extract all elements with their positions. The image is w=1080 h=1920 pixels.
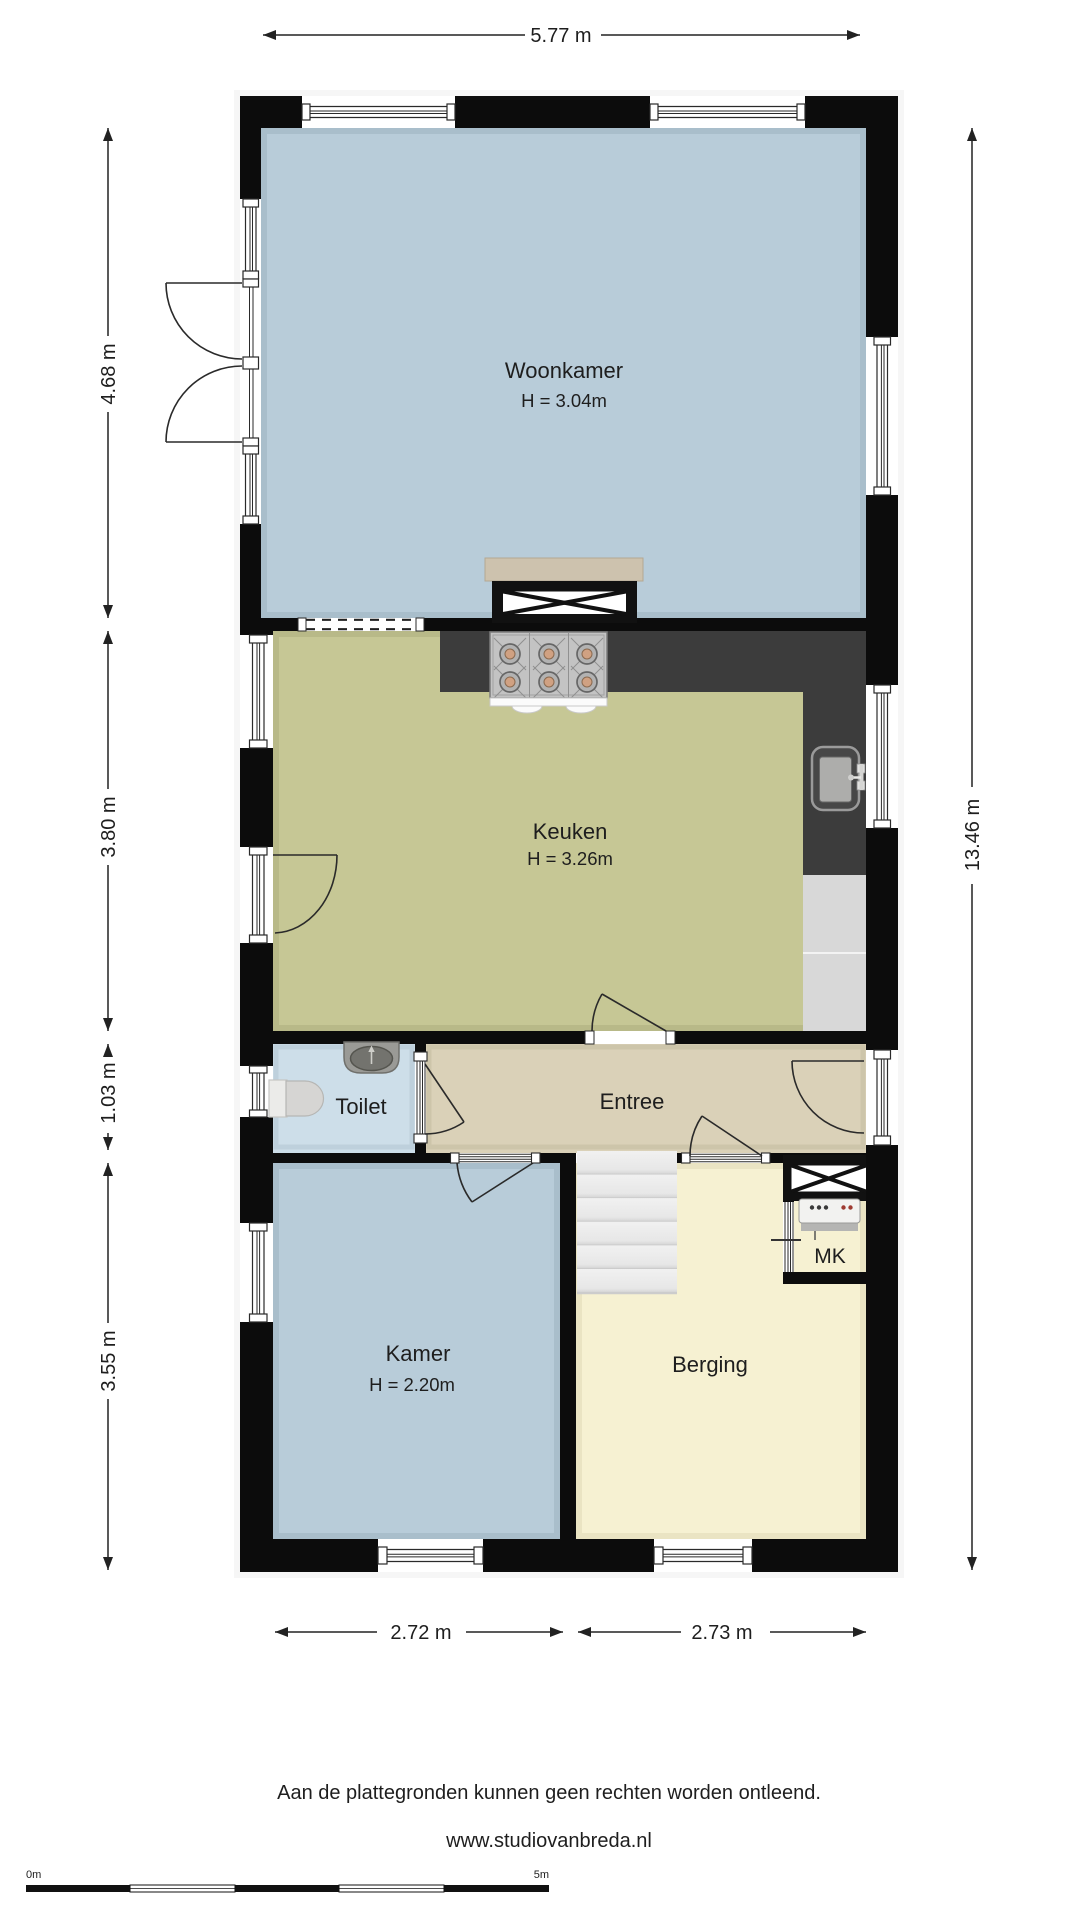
svg-text:3.80 m: 3.80 m (98, 796, 120, 857)
svg-text:H = 3.04m: H = 3.04m (521, 390, 607, 411)
svg-text:Aan de plattegronden kunnen ge: Aan de plattegronden kunnen geen rechten… (277, 1782, 821, 1804)
svg-text:2.72 m: 2.72 m (390, 1622, 451, 1644)
svg-text:2.73 m: 2.73 m (691, 1622, 752, 1644)
svg-text:H = 3.26m: H = 3.26m (527, 848, 613, 869)
svg-text:5.77 m: 5.77 m (530, 25, 591, 47)
svg-text:Kamer: Kamer (386, 1341, 451, 1366)
svg-text:MK: MK (814, 1245, 846, 1268)
svg-text:Woonkamer: Woonkamer (505, 358, 623, 383)
svg-text:Berging: Berging (672, 1352, 748, 1377)
svg-text:www.studiovanbreda.nl: www.studiovanbreda.nl (445, 1830, 652, 1852)
svg-text:H = 2.20m: H = 2.20m (369, 1374, 455, 1395)
svg-text:3.55 m: 3.55 m (98, 1330, 120, 1391)
svg-text:5m: 5m (534, 1869, 549, 1881)
svg-text:4.68 m: 4.68 m (98, 343, 120, 404)
svg-text:13.46 m: 13.46 m (962, 799, 984, 871)
svg-text:Entree: Entree (600, 1089, 665, 1114)
svg-text:Toilet: Toilet (335, 1094, 386, 1119)
svg-text:1.03 m: 1.03 m (98, 1062, 120, 1123)
svg-text:0m: 0m (26, 1869, 41, 1881)
svg-text:Keuken: Keuken (533, 819, 608, 844)
